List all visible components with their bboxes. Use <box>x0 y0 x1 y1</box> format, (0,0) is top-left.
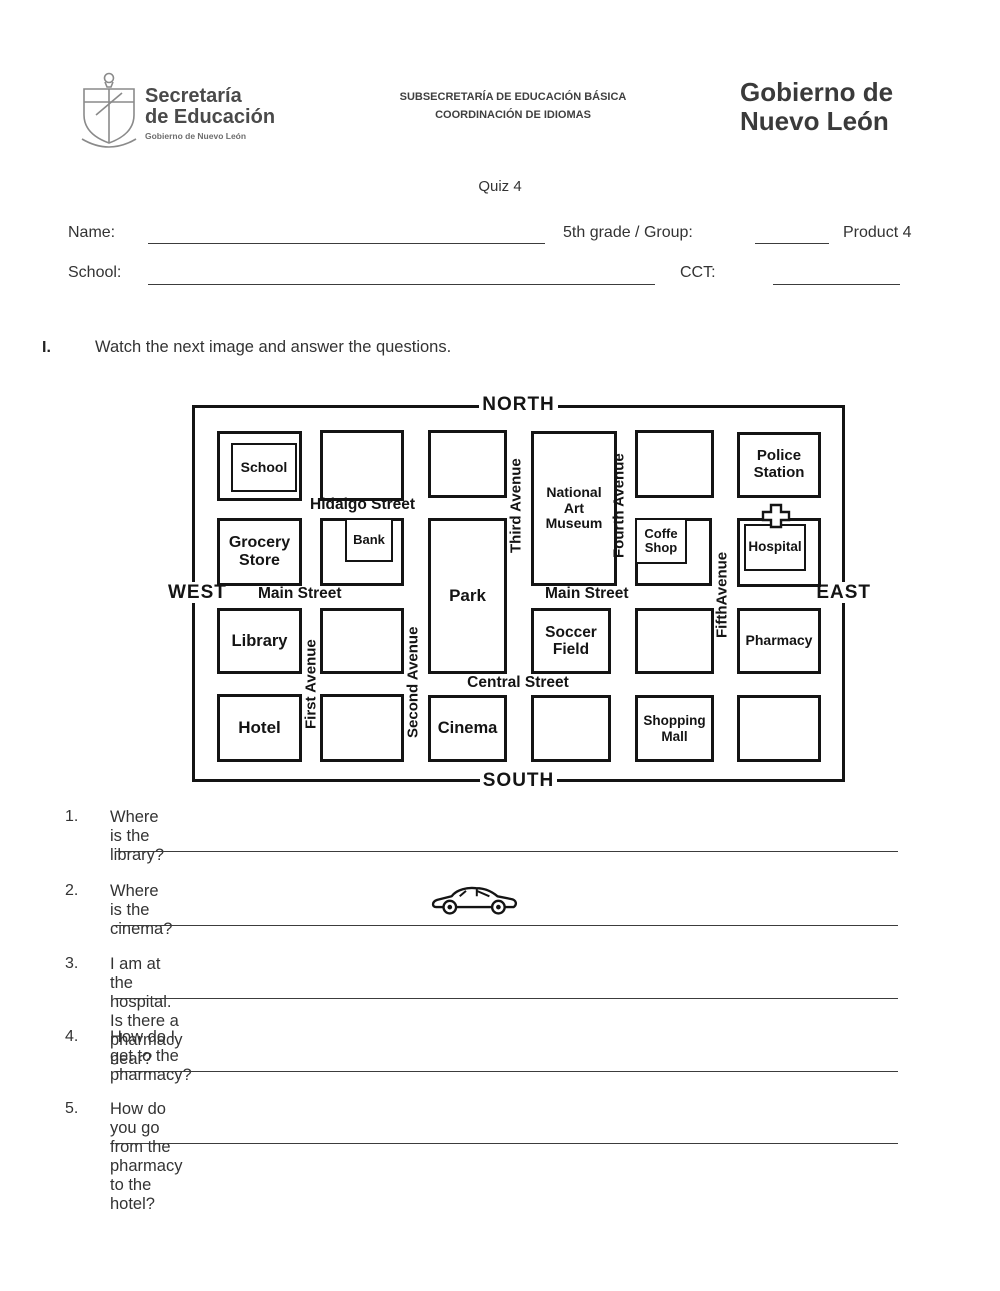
school-label: School <box>231 443 297 492</box>
ministry-title: Secretaría de Educación Gobierno de Nuev… <box>145 86 275 141</box>
coordinacion-line: COORDINACIÓN DE IDIOMAS <box>348 106 678 124</box>
street-label-central: Central Street <box>453 674 583 692</box>
section-number: I. <box>42 339 51 357</box>
map-block-hotel: Hotel <box>217 694 302 762</box>
cct-input-line[interactable] <box>773 284 900 285</box>
question-number: 4. <box>65 1028 78 1046</box>
car-icon <box>429 881 521 917</box>
ministry-subtitle: Gobierno de Nuevo León <box>145 131 275 141</box>
gov-line2: Nuevo León <box>740 107 893 136</box>
map-block-empty <box>635 608 714 674</box>
answer-line-5[interactable] <box>115 1143 898 1144</box>
avenue-label-fourth: Fourth Avenue <box>606 432 632 580</box>
question-text: Where is the library? <box>110 808 164 865</box>
group-input-line[interactable] <box>755 243 829 244</box>
government-title: Gobierno de Nuevo León <box>740 78 893 136</box>
map-block-shopping-mall: Shopping Mall <box>635 695 714 762</box>
header-center: SUBSECRETARÍA DE EDUCACIÓN BÁSICA COORDI… <box>348 88 678 124</box>
answer-line-3[interactable] <box>115 998 898 999</box>
map-block-library: Library <box>217 608 302 674</box>
hospital-label: Hospital <box>744 524 806 571</box>
compass-south: SOUTH <box>195 770 842 792</box>
map-block-museum: National Art Museum <box>531 431 617 586</box>
school-input-line[interactable] <box>148 284 655 285</box>
question-text: How do I get to the pharmacy? <box>110 1028 192 1085</box>
map-block-empty <box>737 695 821 762</box>
question-number: 2. <box>65 882 78 900</box>
map-block-cinema: Cinema <box>428 695 507 762</box>
question-number: 3. <box>65 955 78 973</box>
question-text: Where is the cinema? <box>110 882 172 939</box>
ministry-line1: Secretaría <box>145 86 275 107</box>
gov-line1: Gobierno de <box>740 78 893 107</box>
ministry-line2: de Educación <box>145 107 275 128</box>
map-block-police-station: Police Station <box>737 432 821 498</box>
map-block-empty <box>531 695 611 762</box>
map-block-coffe-shop: Coffe Shop <box>635 518 712 586</box>
coffe-shop-label: Coffe Shop <box>635 518 687 564</box>
coat-of-arms-logo <box>76 70 142 154</box>
compass-east: EAST <box>813 582 874 604</box>
question-text: How do you go from the pharmacy to the h… <box>110 1100 182 1214</box>
map-block-grocery-store: Grocery Store <box>217 518 302 586</box>
grade-group-label: 5th grade / Group: <box>563 224 693 242</box>
map-block-empty <box>320 608 404 674</box>
subsecretaria-line: SUBSECRETARÍA DE EDUCACIÓN BÁSICA <box>348 88 678 106</box>
map-block-bank: Bank <box>320 518 404 586</box>
map-block-empty <box>635 430 714 498</box>
answer-line-1[interactable] <box>115 851 898 852</box>
product-label: Product 4 <box>843 224 911 242</box>
worksheet-page: Secretaría de Educación Gobierno de Nuev… <box>0 0 1000 1291</box>
question-number: 1. <box>65 808 78 826</box>
street-label-main-west: Main Street <box>258 585 342 603</box>
map-block-empty <box>320 694 404 762</box>
quiz-title: Quiz 4 <box>0 178 1000 195</box>
bank-label: Bank <box>345 518 393 562</box>
map-block-park: Park <box>428 518 507 674</box>
town-map: NORTH SOUTH WEST EAST School Third Avenu… <box>192 405 845 782</box>
compass-north: NORTH <box>195 394 842 416</box>
instruction-text: Watch the next image and answer the ques… <box>95 338 451 357</box>
map-block-empty <box>428 430 507 498</box>
street-label-hidalgo: Hidalgo Street <box>310 496 415 514</box>
cct-label: CCT: <box>680 264 716 282</box>
street-label-main-east: Main Street <box>545 585 629 603</box>
answer-line-4[interactable] <box>115 1071 898 1072</box>
map-block-soccer-field: Soccer Field <box>531 608 611 674</box>
answer-line-2[interactable] <box>115 925 898 926</box>
map-block-school: School <box>217 431 302 501</box>
hospital-cross-icon <box>761 503 791 529</box>
question-number: 5. <box>65 1100 78 1118</box>
map-block-empty <box>320 430 404 501</box>
map-block-pharmacy: Pharmacy <box>737 608 821 674</box>
school-label: School: <box>68 264 121 282</box>
name-label: Name: <box>68 224 115 242</box>
name-input-line[interactable] <box>148 243 545 244</box>
